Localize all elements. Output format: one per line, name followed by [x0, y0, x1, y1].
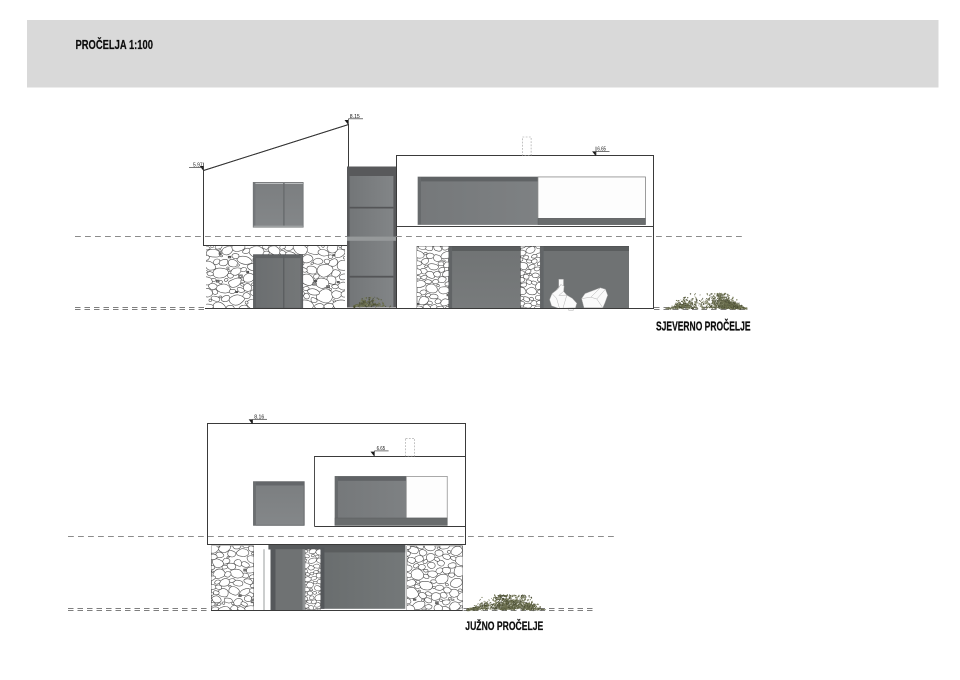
svg-text:5.97: 5.97: [193, 163, 203, 169]
svg-text:SJEVERNO PROČELJE: SJEVERNO PROČELJE: [656, 318, 751, 333]
svg-text:8.15: 8.15: [350, 114, 360, 120]
svg-text:JUŽNO PROČELJE: JUŽNO PROČELJE: [465, 618, 543, 633]
svg-text:6.65: 6.65: [597, 147, 606, 153]
svg-text:8.16: 8.16: [254, 414, 264, 420]
svg-text:PROČELJA 1:100: PROČELJA 1:100: [76, 37, 154, 52]
svg-text:6.65: 6.65: [377, 446, 386, 452]
